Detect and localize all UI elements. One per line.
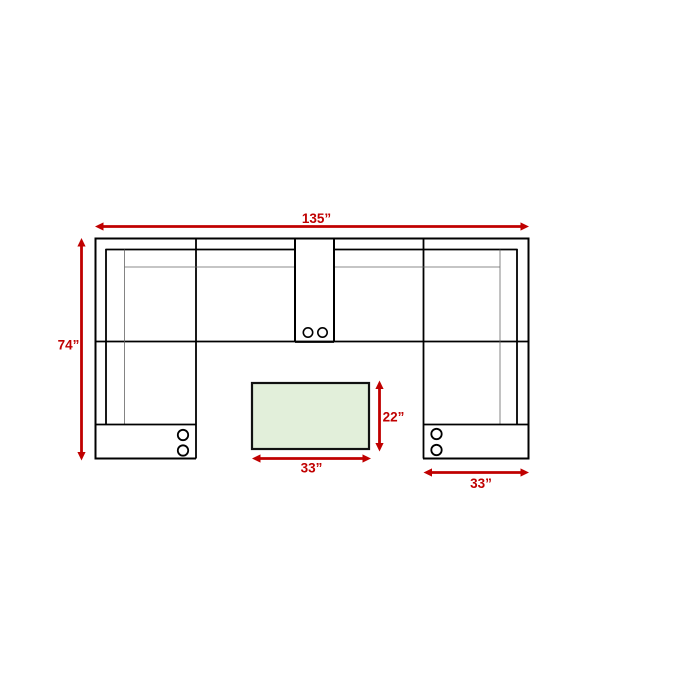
svg-text:22”: 22” [383, 410, 405, 425]
svg-text:33”: 33” [301, 461, 323, 476]
svg-text:135”: 135” [302, 211, 331, 226]
svg-text:74”: 74” [58, 338, 80, 353]
svg-text:33”: 33” [470, 476, 492, 491]
